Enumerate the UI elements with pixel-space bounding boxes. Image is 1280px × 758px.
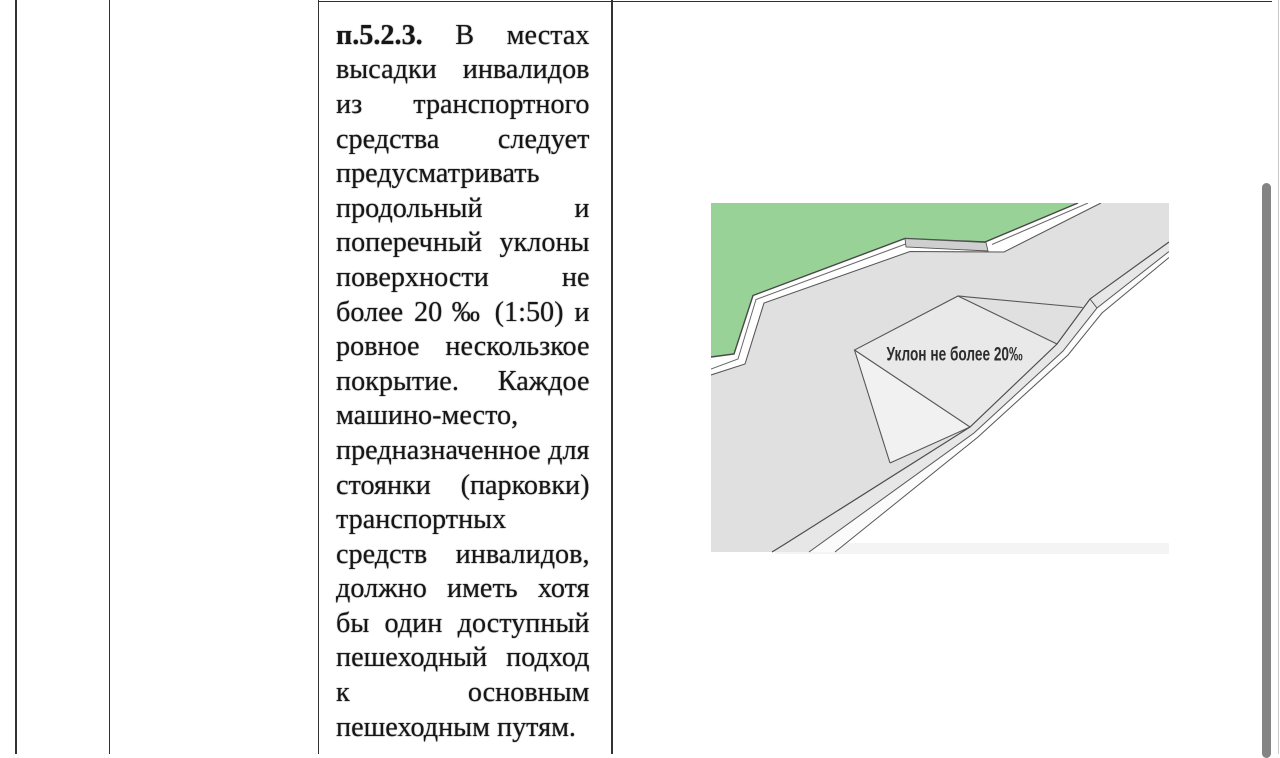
svg-text:Уклон не более 20‰: Уклон не более 20‰ (887, 343, 1023, 365)
